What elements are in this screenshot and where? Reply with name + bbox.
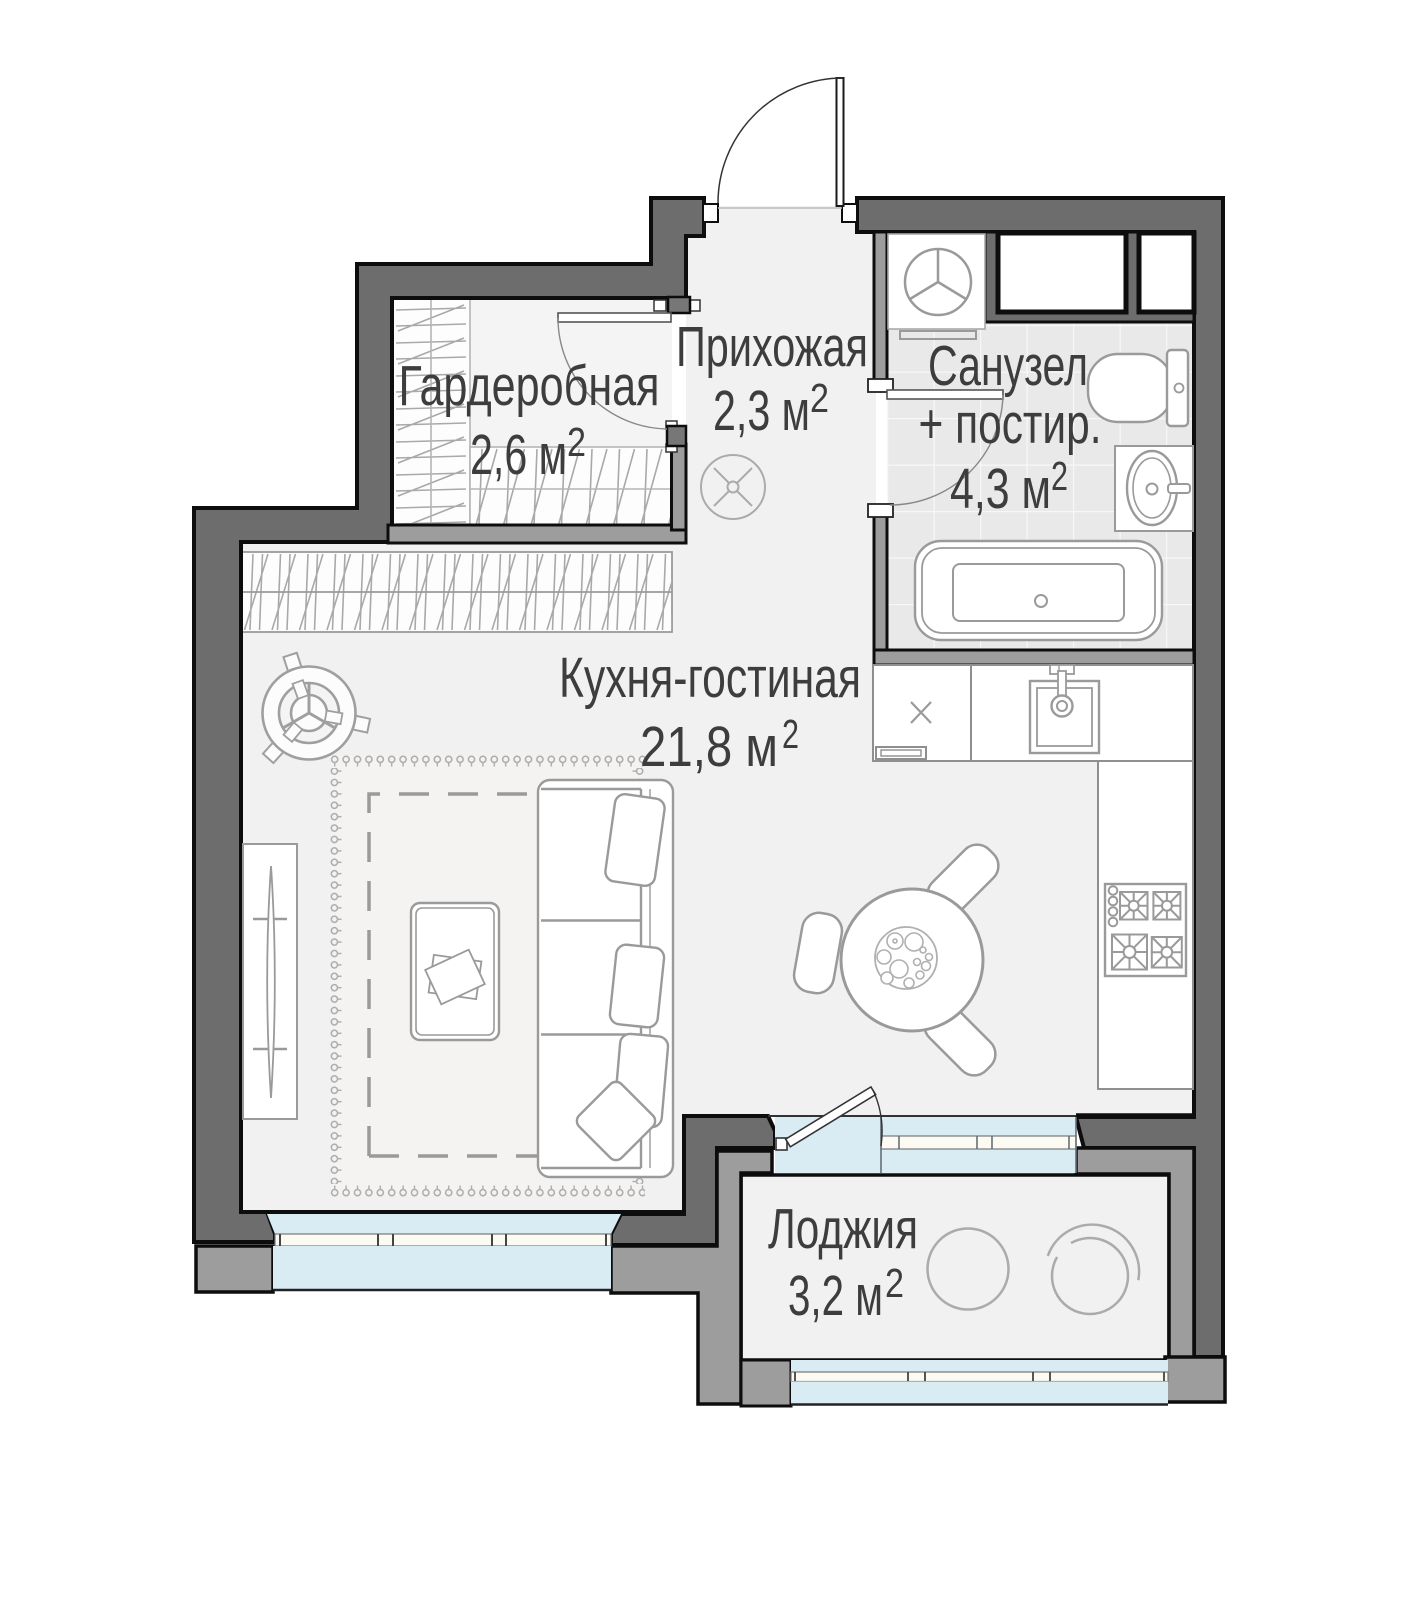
- svg-text:Прихожая: Прихожая: [676, 315, 868, 379]
- svg-text:Гардеробная: Гардеробная: [399, 354, 660, 418]
- svg-text:3,2 м: 3,2 м: [788, 1264, 883, 1328]
- svg-text:2: 2: [782, 711, 799, 757]
- svg-text:2: 2: [885, 1260, 904, 1306]
- svg-text:Санузел: Санузел: [928, 334, 1088, 398]
- svg-text:2: 2: [567, 419, 586, 465]
- svg-text:2,6 м: 2,6 м: [470, 423, 567, 487]
- svg-text:2: 2: [1051, 453, 1068, 499]
- svg-text:Лоджия: Лоджия: [768, 1197, 918, 1261]
- svg-text:21,8 м: 21,8 м: [640, 715, 778, 779]
- svg-text:Кухня-гостиная: Кухня-гостиная: [559, 646, 861, 710]
- svg-text:2,3 м: 2,3 м: [713, 379, 810, 443]
- svg-text:4,3 м: 4,3 м: [950, 457, 1051, 521]
- svg-text:2: 2: [810, 375, 829, 421]
- svg-text:+ постир.: + постир.: [919, 392, 1102, 456]
